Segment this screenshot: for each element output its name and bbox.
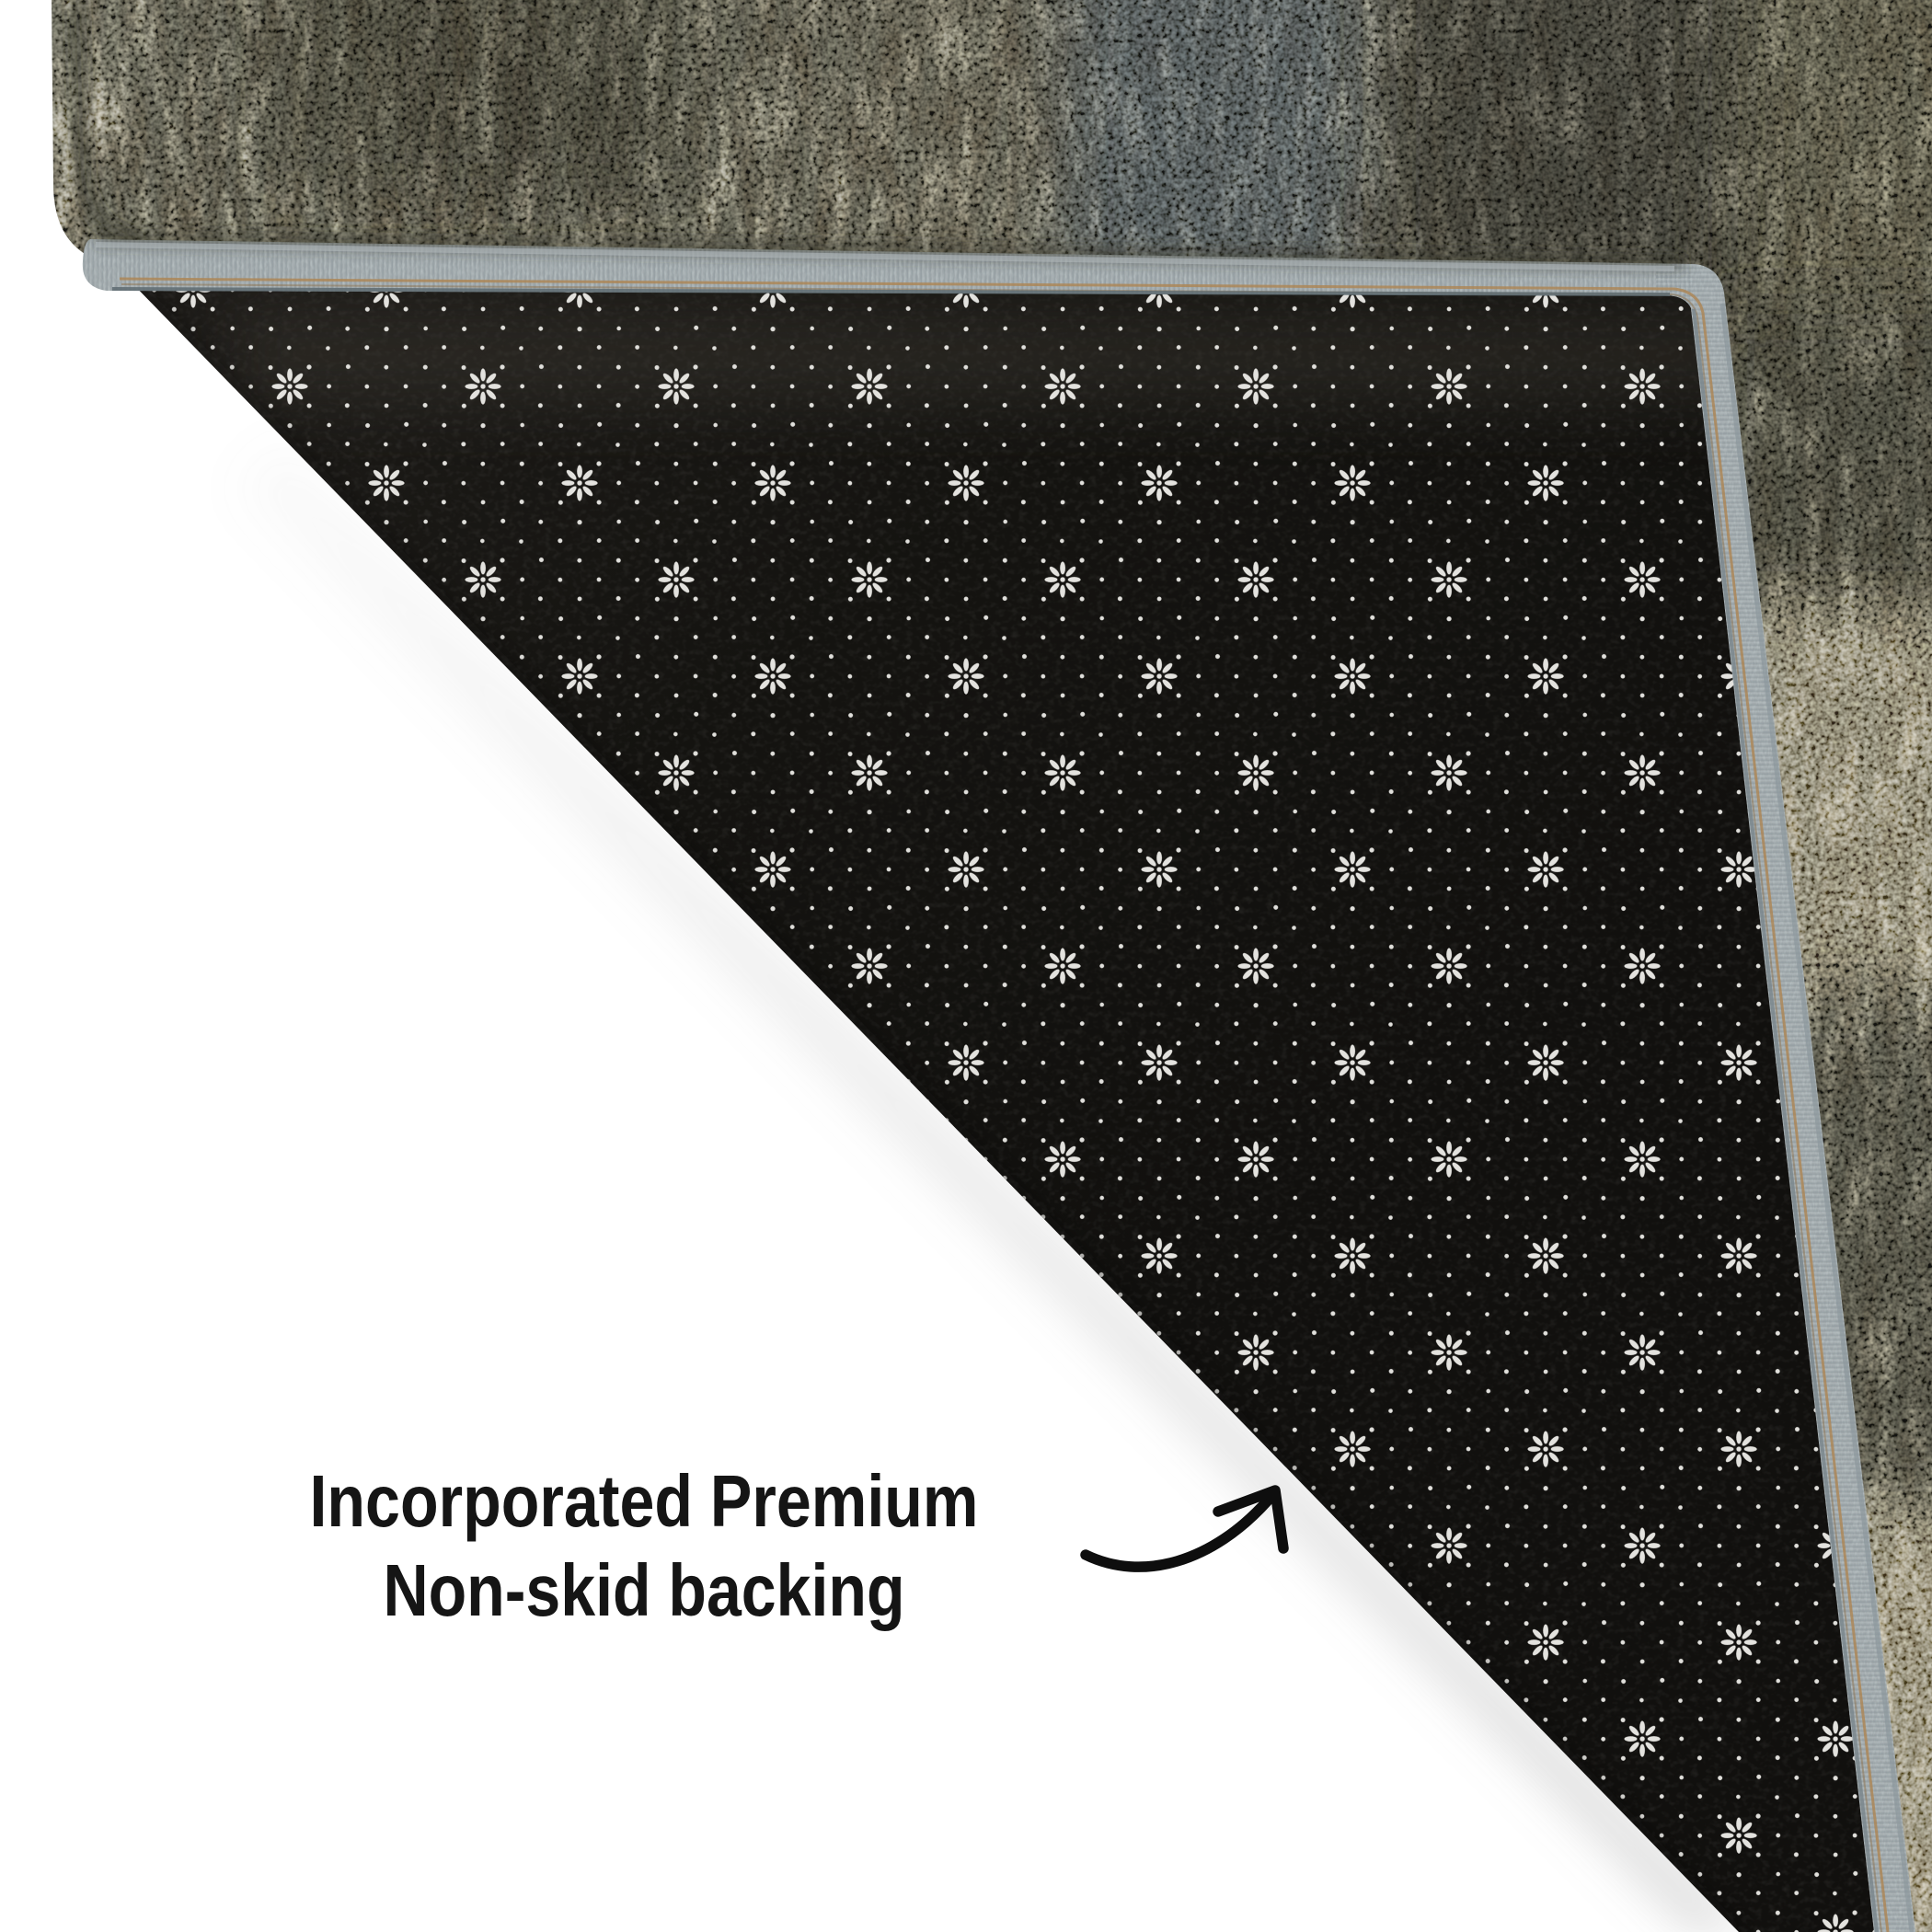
svg-text:Incorporated Premium: Incorporated Premium [310, 1460, 979, 1542]
svg-text:Non-skid backing: Non-skid backing [384, 1549, 905, 1631]
